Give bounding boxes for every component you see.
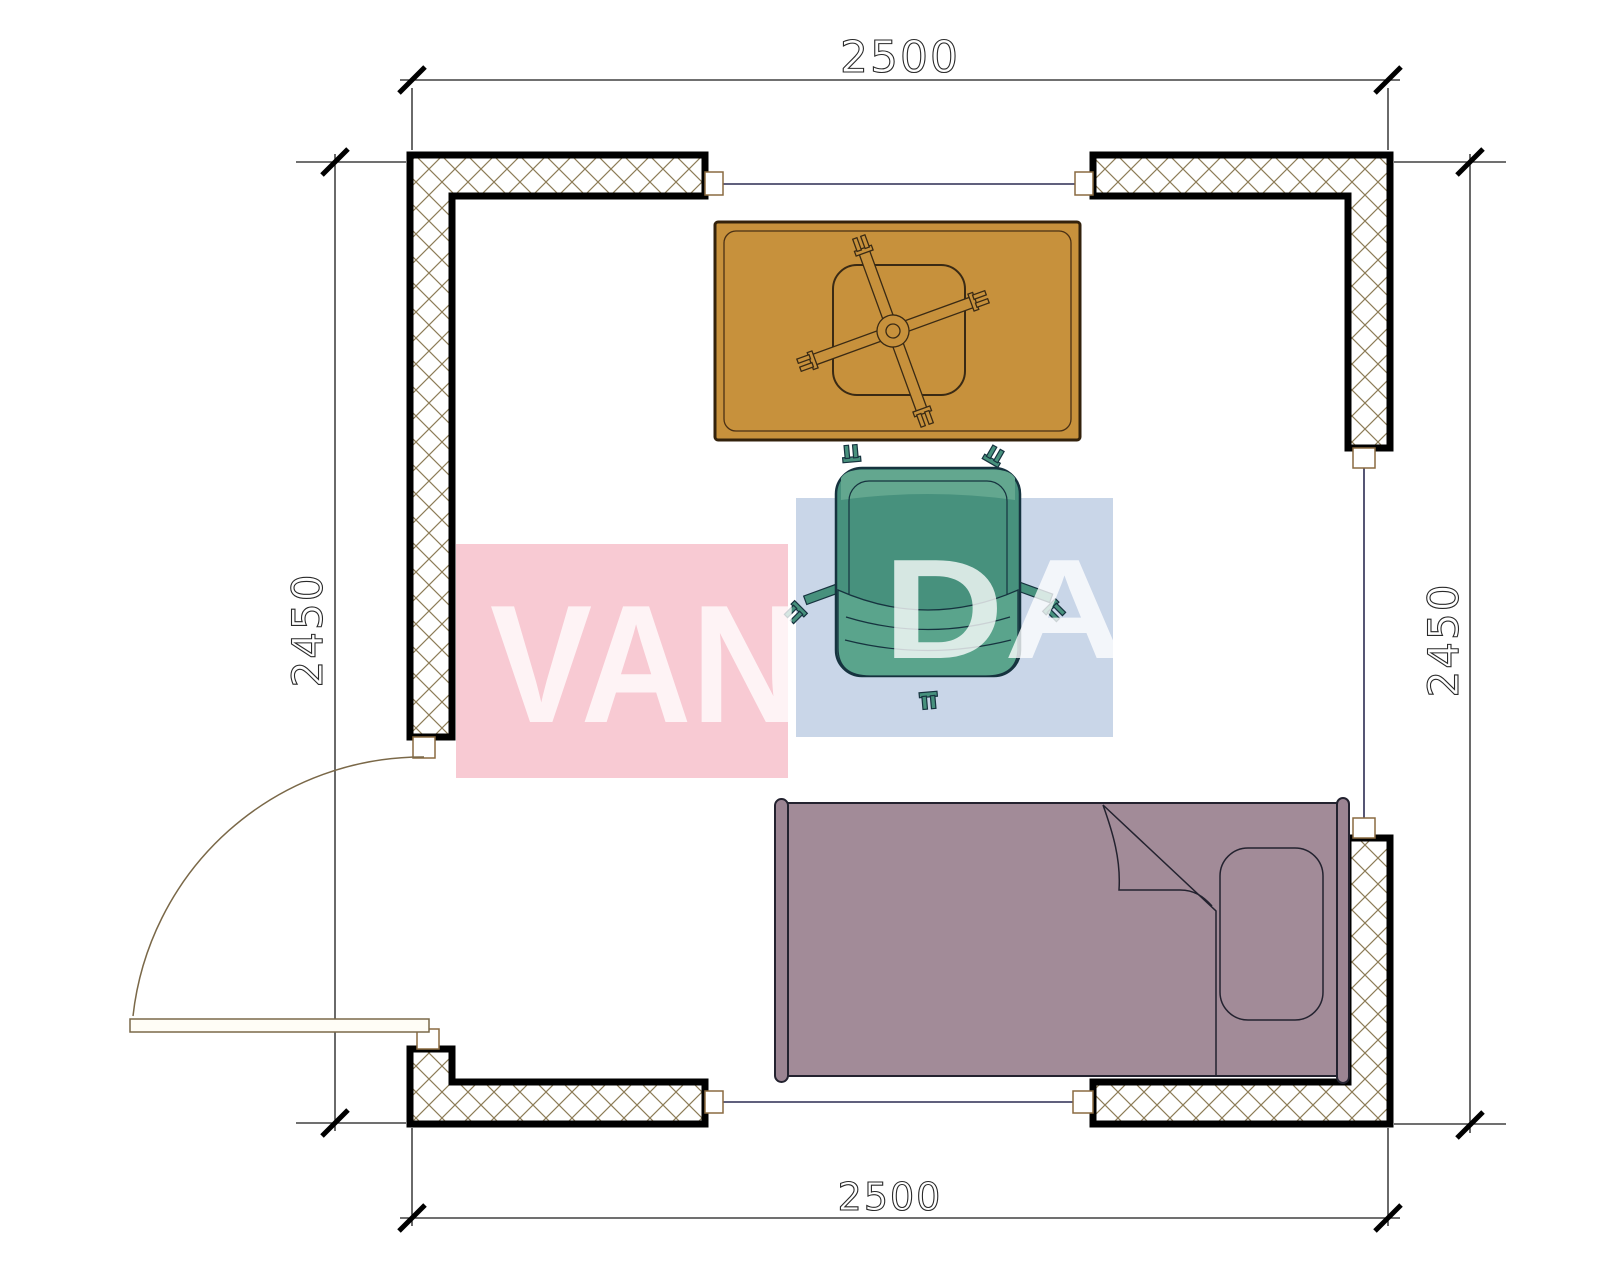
bed-footboard	[1337, 798, 1349, 1083]
window-jamb	[705, 172, 723, 195]
door-jamb	[413, 737, 435, 758]
dimension-label-left: 2450	[283, 573, 332, 688]
floor-plan-drawing: 2500 2500 2450 2450	[0, 0, 1600, 1280]
window-jamb	[1073, 1091, 1093, 1113]
dimension-label-bottom: 2500	[838, 1175, 943, 1219]
watermark-text-da: DA	[883, 530, 1125, 689]
bed-headboard	[775, 799, 788, 1082]
wall-top-right	[1093, 155, 1390, 448]
desk	[715, 203, 1080, 459]
dimension-label-right: 2450	[1419, 583, 1468, 698]
single-bed	[775, 798, 1349, 1083]
window-jamb	[1353, 818, 1375, 838]
window-jamb	[1353, 448, 1375, 468]
caster-wheel	[982, 444, 1006, 468]
caster-wheel	[842, 444, 861, 463]
window-jamb	[1075, 172, 1093, 195]
dimension-label-top: 2500	[840, 32, 960, 83]
door-swing-arc	[133, 757, 424, 1016]
watermark-text-van: VAN	[490, 570, 802, 758]
wall-bottom-left	[410, 1049, 705, 1124]
door-leaf	[130, 1019, 429, 1032]
bed-pillow	[1220, 848, 1323, 1020]
floor-plan-canvas: 2500 2500 2450 2450	[0, 0, 1600, 1280]
window-jamb	[705, 1091, 723, 1113]
